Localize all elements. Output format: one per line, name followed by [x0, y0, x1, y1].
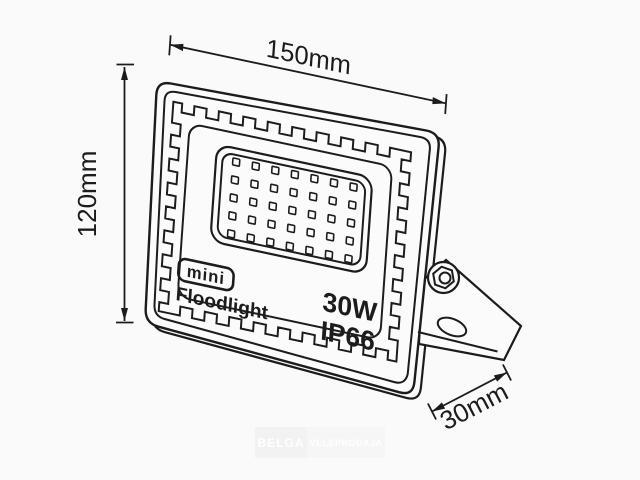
height-dim-arrowhead-top — [121, 67, 128, 80]
led-chip — [231, 176, 238, 184]
led-chip — [347, 219, 354, 227]
led-chip — [325, 250, 332, 258]
led-chip — [306, 246, 313, 254]
depth-dimension: 30mm — [428, 365, 513, 437]
led-chip — [269, 202, 276, 210]
led-chip — [289, 206, 296, 214]
floodlight-technical-drawing: 150mm mini Floodlight 30W IP66 — [0, 0, 640, 480]
led-chip — [307, 228, 314, 236]
led-chip — [330, 179, 337, 187]
led-chip — [230, 194, 237, 202]
height-dim-label: 120mm — [72, 151, 102, 238]
height-dim-arrowhead-bottom — [121, 308, 128, 321]
led-chip — [227, 230, 234, 238]
height-dimension: 120mm — [72, 65, 134, 323]
led-chip — [350, 183, 357, 191]
led-chip — [233, 158, 240, 166]
led-chip — [287, 224, 294, 232]
led-chip — [291, 170, 298, 178]
led-chip — [286, 242, 293, 250]
led-chip — [328, 215, 335, 223]
led-chip — [309, 192, 316, 200]
width-dim-arrowhead-left — [170, 41, 184, 51]
led-chip — [248, 216, 255, 224]
led-chip — [250, 198, 257, 206]
led-chip — [345, 255, 352, 263]
led-chip — [272, 166, 279, 174]
led-chip — [311, 175, 318, 183]
led-chip — [268, 220, 275, 228]
depth-dim-label: 30mm — [435, 376, 513, 436]
led-chip — [247, 234, 254, 242]
width-dim-arrowhead-right — [432, 97, 446, 107]
led-chip — [270, 184, 277, 192]
led-chip — [346, 237, 353, 245]
led-chip — [267, 238, 274, 246]
led-chip — [349, 201, 356, 209]
screenshot-root: { "drawing": { "type": "technical-line-d… — [0, 0, 640, 480]
led-chip — [252, 162, 259, 170]
led-chip — [308, 210, 315, 218]
led-chip — [290, 188, 297, 196]
led-chip — [327, 233, 334, 241]
led-chip — [251, 180, 258, 188]
pivot-bolt — [428, 262, 459, 293]
led-chip — [329, 197, 336, 205]
led-chip — [229, 212, 236, 220]
